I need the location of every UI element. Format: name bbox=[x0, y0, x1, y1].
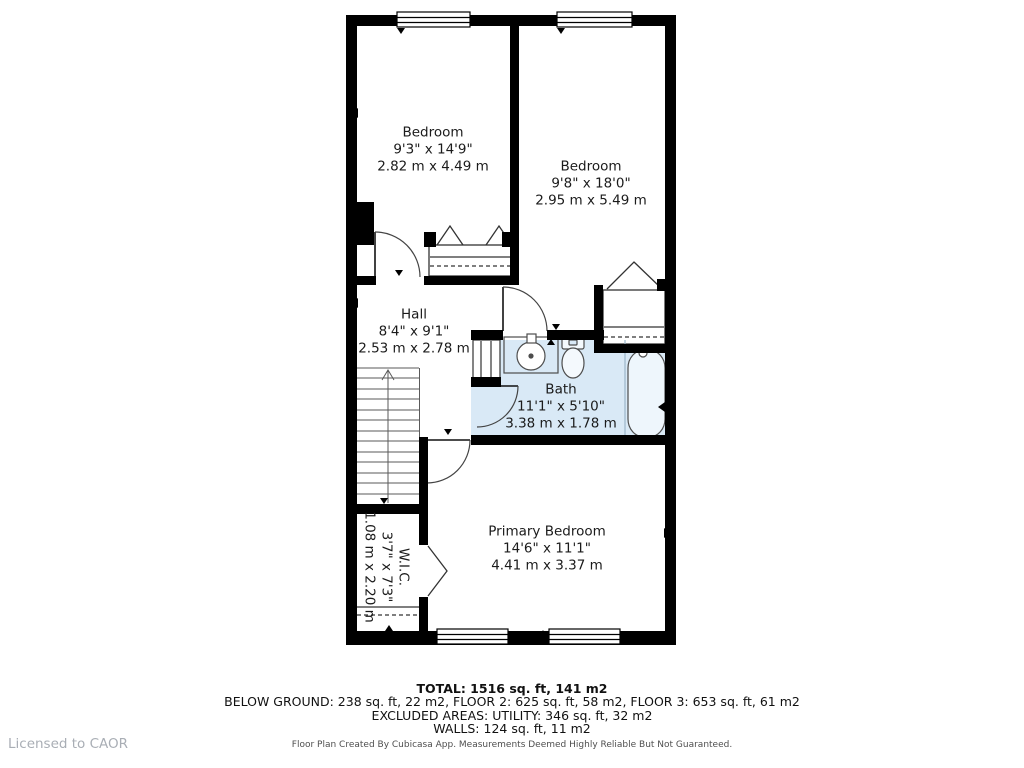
room-name: Hall bbox=[358, 307, 470, 324]
summary-excluded-areas: EXCLUDED AREAS: UTILITY: 346 sq. ft, 32 … bbox=[0, 709, 1024, 722]
bedroom2-door bbox=[503, 287, 547, 331]
wall-outer-left bbox=[346, 15, 357, 645]
summary-walls: WALLS: 124 sq. ft, 11 m2 bbox=[0, 722, 1024, 735]
room-name: Primary Bedroom bbox=[488, 524, 606, 541]
marker-icon bbox=[552, 324, 560, 330]
marker-icon bbox=[395, 270, 403, 276]
window-icon bbox=[557, 12, 632, 27]
marker-icon bbox=[557, 28, 565, 34]
room-dimensions-metric: 2.53 m x 2.78 m bbox=[358, 341, 470, 358]
wall-closet2-jamb-right bbox=[657, 279, 676, 291]
room-dimensions-imperial: 9'3" x 14'9" bbox=[377, 142, 489, 159]
room-label-primary-bedroom: Primary Bedroom 14'6" x 11'1" 4.41 m x 3… bbox=[488, 524, 606, 575]
area-summary: TOTAL: 1516 sq. ft, 141 m2 BELOW GROUND:… bbox=[0, 682, 1024, 736]
room-dimensions-metric: 2.95 m x 5.49 m bbox=[535, 193, 647, 210]
room-name: Bath bbox=[505, 382, 617, 399]
summary-total: TOTAL: 1516 sq. ft, 141 m2 bbox=[0, 682, 1024, 695]
bifold-door-icon bbox=[437, 226, 463, 245]
bathtub-icon bbox=[628, 346, 665, 437]
marker-icon bbox=[380, 498, 388, 504]
license-watermark: Licensed to CAOR bbox=[8, 736, 128, 752]
room-dimensions-imperial: 11'1" x 5'10" bbox=[505, 399, 617, 416]
linen-closet bbox=[473, 340, 500, 378]
wall-bath-north-left bbox=[471, 330, 503, 340]
wall-stairs-divider bbox=[419, 437, 428, 515]
toilet-icon bbox=[562, 338, 584, 378]
marker-icon bbox=[385, 625, 393, 631]
room-label-wic: W.I.C. 3'7" x 7'3" 1.08 m x 2.20 m bbox=[361, 511, 412, 623]
primary-bedroom-door bbox=[427, 440, 470, 483]
wall-outer-right bbox=[665, 15, 676, 645]
room-label-bedroom-1: Bedroom 9'3" x 14'9" 2.82 m x 4.49 m bbox=[377, 125, 489, 176]
room-name: Bedroom bbox=[377, 125, 489, 142]
wall-wic-east-upper bbox=[419, 504, 428, 545]
wall-closet2-west bbox=[594, 285, 603, 350]
room-name: W.I.C. bbox=[395, 511, 412, 623]
room-name: Bedroom bbox=[535, 159, 647, 176]
room-dimensions-metric: 4.41 m x 3.37 m bbox=[488, 558, 606, 575]
room-dimensions-imperial: 9'8" x 18'0" bbox=[535, 176, 647, 193]
room-label-hall: Hall 8'4" x 9'1" 2.53 m x 2.78 m bbox=[358, 307, 470, 358]
room-dimensions-imperial: 8'4" x 9'1" bbox=[358, 324, 470, 341]
bifold-door-icon bbox=[607, 262, 660, 289]
room-dimensions-metric: 3.38 m x 1.78 m bbox=[505, 416, 617, 433]
window-icon bbox=[549, 629, 620, 644]
floor-plan-page: { "rooms": { "bedroom1": { "name": "Bedr… bbox=[0, 0, 1024, 768]
wall-outer-bottom bbox=[346, 631, 676, 645]
marker-icon bbox=[444, 429, 452, 435]
room-label-bedroom-2: Bedroom 9'8" x 18'0" 2.95 m x 5.49 m bbox=[535, 159, 647, 210]
bedroom2-closet bbox=[603, 262, 665, 344]
wall-closet1-jamb-left bbox=[424, 232, 436, 247]
wall-bath-south bbox=[471, 435, 676, 445]
wall-left-protrusion bbox=[357, 202, 374, 245]
wall-wic-east-lower bbox=[419, 597, 428, 635]
bifold-door-icon bbox=[428, 546, 447, 596]
room-dimensions-imperial: 3'7" x 7'3" bbox=[378, 511, 395, 623]
room-dimensions-imperial: 14'6" x 11'1" bbox=[488, 541, 606, 558]
disclaimer-text: Floor Plan Created By Cubicasa App. Meas… bbox=[0, 740, 1024, 750]
room-label-bath: Bath 11'1" x 5'10" 3.38 m x 1.78 m bbox=[505, 382, 617, 433]
room-dimensions-metric: 1.08 m x 2.20 m bbox=[361, 511, 378, 623]
window-icon bbox=[397, 12, 470, 27]
marker-icon bbox=[397, 28, 405, 34]
wall-bedroom1-south-stub bbox=[346, 276, 376, 285]
room-dimensions-metric: 2.82 m x 4.49 m bbox=[377, 159, 489, 176]
window-icon bbox=[437, 629, 508, 644]
wall-linen-south-stub bbox=[471, 377, 501, 387]
summary-floors: BELOW GROUND: 238 sq. ft, 22 m2, FLOOR 2… bbox=[0, 695, 1024, 708]
wall-closet2-south bbox=[594, 344, 676, 353]
wall-closet1-jamb-right bbox=[502, 232, 519, 247]
staircase bbox=[357, 368, 420, 503]
wall-closet1-bottom bbox=[424, 276, 519, 285]
